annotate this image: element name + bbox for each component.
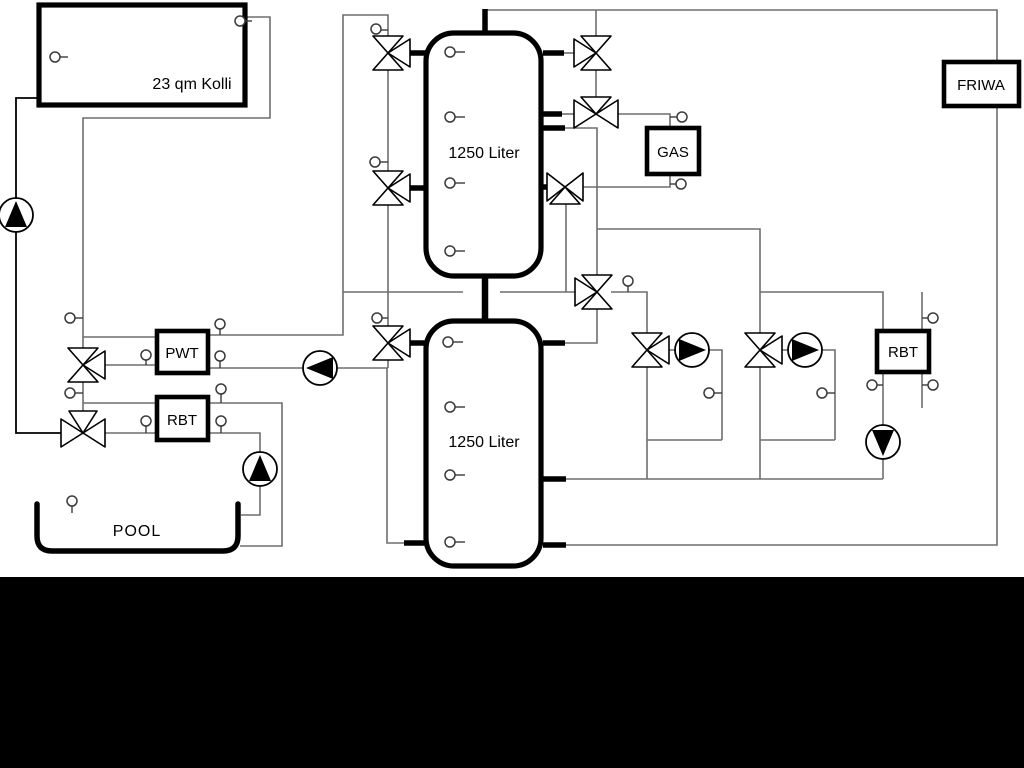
valve-solar-pwt [68,348,105,382]
rbt-left-label: RBT [167,412,197,429]
friwa-label: FRIWA [957,77,1005,94]
sensor-rbtr-return [867,380,883,390]
solar-pump [0,198,33,232]
sensor-pwt-out-1 [215,319,225,335]
rbt-right-label: RBT [888,344,918,361]
pipe-hc1-feed [611,292,647,334]
valve-tank1-upper-left [373,36,410,70]
valve-gas-return [547,173,583,204]
sensor-rbtr-sec-1 [922,313,938,323]
hydraulic-schematic: 23 qm Kolli 1250 Liter 1250 Liter PWT RB… [0,0,1024,768]
sensor-solar-line-2 [65,388,83,398]
schematic-canvas: 23 qm Kolli 1250 Liter 1250 Liter PWT RB… [0,0,1024,768]
valve-hc2-mixer [745,333,782,367]
pipe-hc2-feed [597,229,760,334]
sensor-rbtl-out-1 [216,384,226,403]
sensor-solar-line-1 [65,313,83,323]
sensor-hc2 [817,388,835,398]
sensor-chain-3 [372,313,388,323]
sensor-pwt-out-2 [215,351,225,368]
sensor-rbtr-sec-2 [922,380,938,390]
pipe-collector-return [16,98,62,433]
sensor-pool [67,496,77,513]
valve-tank2-upper-left [373,326,410,360]
sensor-chain-1 [371,24,388,34]
tank2-label: 1250 Liter [448,434,520,451]
sensor-chain-2 [370,157,388,167]
sensor-rbtl-out-2 [216,416,226,433]
valve-heating-mixer [575,275,612,309]
pwt-charge-pump [303,351,337,385]
valve-tank1-lower-left [373,171,410,205]
pool-pump [243,452,277,486]
pool-label: POOL [113,523,161,540]
hc2-pump [788,333,822,367]
valve-tank1-top-right [574,36,611,70]
tank1-label: 1250 Liter [448,145,520,162]
pipe-tank2-lowleft [387,368,404,543]
pwt-label: PWT [165,345,198,362]
letterbox-bar [0,577,1024,768]
gas-label: GAS [657,144,689,161]
sensor-mixer [623,276,633,292]
sensor-pwt-in [141,350,151,365]
rbt-right-pump [866,425,900,459]
pipe-t2r-to-v9 [565,308,597,343]
sensor-gas-top [670,112,687,122]
pipe-gas-bottom [583,175,670,187]
sensor-hc1 [704,388,722,398]
hc1-pump [675,333,709,367]
collector-label: 23 qm Kolli [152,76,231,93]
sensor-gas-bottom [670,179,686,189]
valve-hc1-mixer [632,333,669,367]
pipe-rbtr-feed [760,292,883,331]
valve-gas-flow [574,97,618,128]
valve-solar-bypass [61,411,105,447]
sensor-rbtl-in [141,416,151,433]
